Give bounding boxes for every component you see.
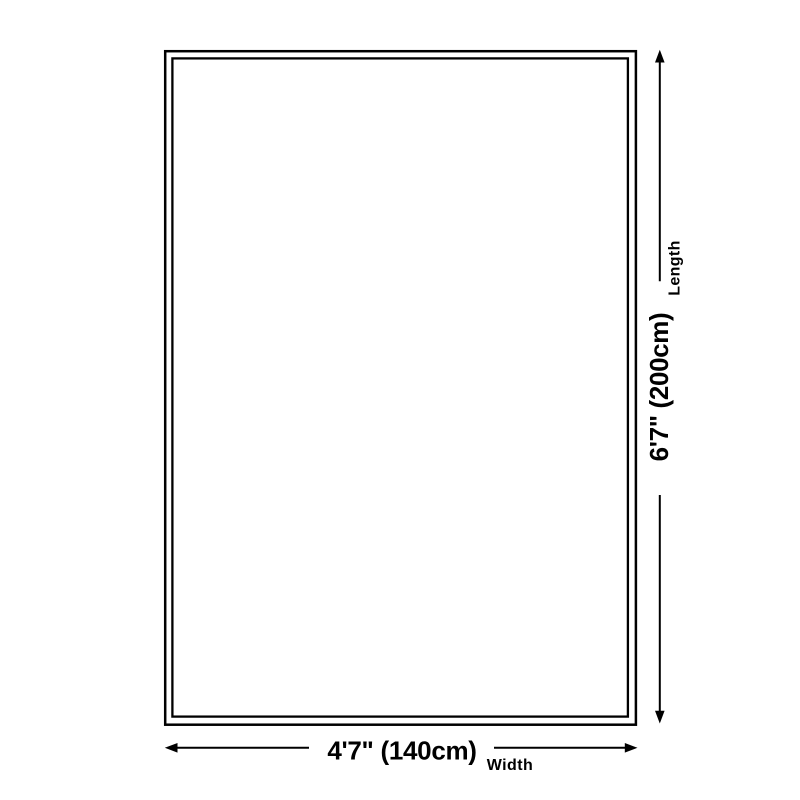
svg-text:6'7" (200cm): 6'7" (200cm) xyxy=(644,313,674,462)
svg-text:4'7" (140cm): 4'7" (140cm) xyxy=(327,736,476,766)
svg-text:Length: Length xyxy=(667,240,684,295)
svg-text:Width: Width xyxy=(487,757,534,774)
